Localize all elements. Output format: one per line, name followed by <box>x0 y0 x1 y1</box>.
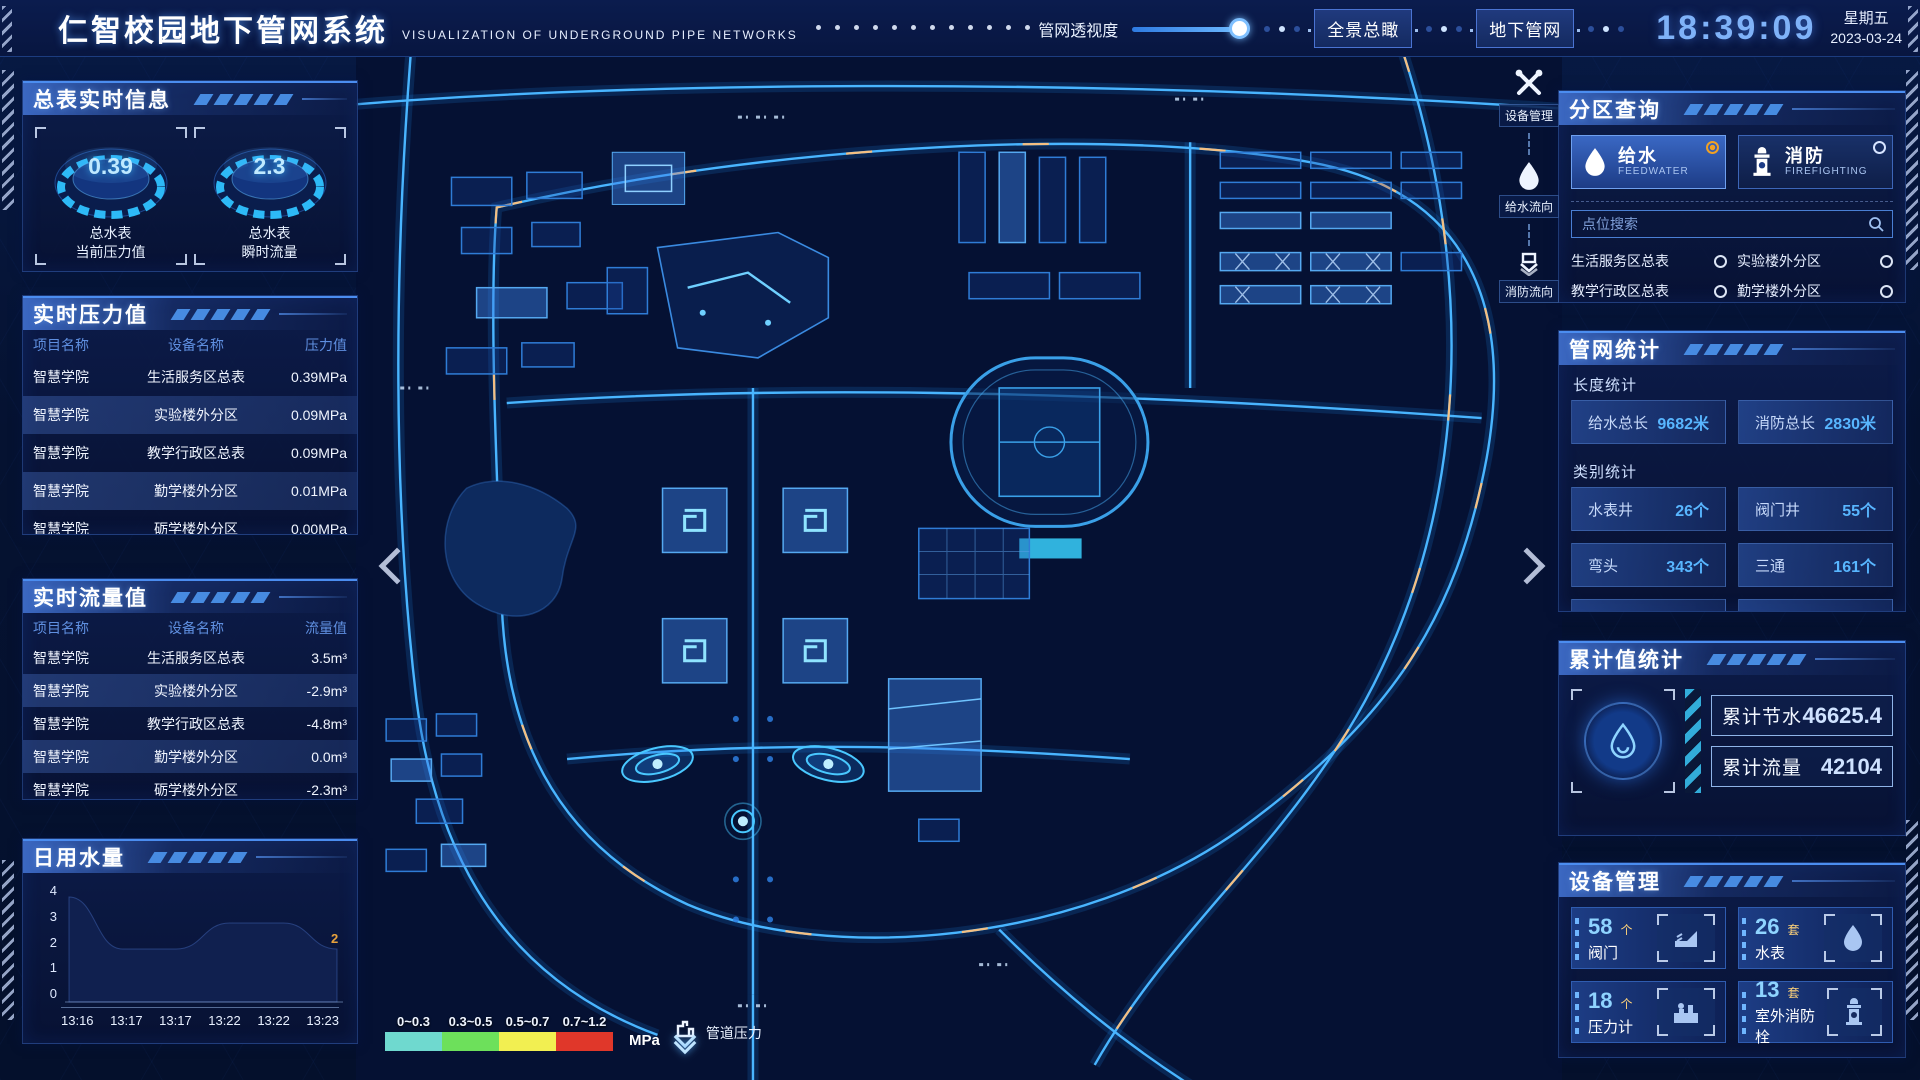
table-row[interactable]: 智慧学院砺学楼外分区-2.3m³ <box>23 773 357 800</box>
radio-icon[interactable] <box>1880 285 1893 298</box>
legend-unit: MPa <box>629 1032 660 1049</box>
pipe-pressure-icon[interactable] <box>674 1019 696 1051</box>
point-item[interactable]: 生活服务区总表 <box>1571 246 1727 276</box>
point-list: 生活服务区总表 实验楼外分区 教学行政区总表 勤学楼外分区 砺学楼外分区 宿舍区… <box>1559 238 1905 303</box>
search-icon[interactable] <box>1868 216 1884 232</box>
device-card-hydrant[interactable]: 13套 室外消防栓 <box>1738 981 1893 1043</box>
tool-fire-flow[interactable]: 消防流向 <box>1499 252 1559 303</box>
weekday: 星期五 <box>1844 9 1889 29</box>
point-item[interactable]: 实验楼外分区 <box>1737 246 1893 276</box>
panel-title: 日用水量 <box>33 842 125 872</box>
stat-chip: 水表井26个 <box>1571 487 1726 531</box>
stat-chip: 三通161个 <box>1738 543 1893 587</box>
device-card-water-meter[interactable]: 26套 水表 <box>1738 907 1893 969</box>
clock: 18:39:09 <box>1656 9 1816 48</box>
panel-title: 设备管理 <box>1569 866 1661 896</box>
table-row[interactable]: 智慧学院砺学楼外分区0.00MPa <box>23 510 357 535</box>
flow-table: 智慧学院生活服务区总表3.5m³ 智慧学院实验楼外分区-2.9m³ 智慧学院教学… <box>23 641 357 800</box>
hazard-stripe <box>1685 689 1701 793</box>
header-bar: 仁智校园地下管网系统 VISUALIZATION OF UNDERGROUND … <box>0 0 1920 57</box>
panel-title: 实时压力值 <box>33 299 148 329</box>
panel-title: 实时流量值 <box>33 582 148 612</box>
panel-title: 累计值统计 <box>1569 644 1684 674</box>
search-input[interactable] <box>1580 215 1868 233</box>
table-row[interactable]: 智慧学院实验楼外分区0.09MPa <box>23 396 357 434</box>
table-row[interactable]: 智慧学院教学行政区总表-4.8m³ <box>23 707 357 740</box>
water-drop-icon <box>1582 147 1608 177</box>
panel-cumulative: 累计值统计 累计节水46625.4 累计流量42104 <box>1558 640 1906 836</box>
tool-feedwater-flow[interactable]: 给水流向 <box>1499 161 1559 218</box>
point-item[interactable]: 教学行政区总表 <box>1571 276 1727 303</box>
water-saving-icon <box>1571 689 1675 793</box>
radio-icon <box>1873 141 1886 154</box>
table-row[interactable]: 智慧学院生活服务区总表0.39MPa <box>23 358 357 396</box>
panel-device-mgmt: 设备管理 58个 阀门 26套 水表 18个 压力计 <box>1558 862 1906 1058</box>
toggle-feedwater[interactable]: 给水FEEDWATER <box>1571 135 1726 189</box>
valve-icon <box>1671 925 1701 951</box>
panel-zone-query: 分区查询 给水FEEDWATER 消防FIREFIGHTING <box>1558 90 1906 303</box>
underground-button[interactable]: 地下管网 <box>1476 9 1574 48</box>
date: 2023-03-24 <box>1830 29 1902 48</box>
stat-chip-clipped <box>1571 599 1726 612</box>
stat-chip: 消防总长2830米 <box>1738 400 1893 444</box>
table-row[interactable]: 智慧学院勤学楼外分区0.0m³ <box>23 740 357 773</box>
app-subtitle: VISUALIZATION OF UNDERGROUND PIPE NETWOR… <box>402 28 798 42</box>
stat-chip: 阀门井55个 <box>1738 487 1893 531</box>
legend-caption: 管道压力 <box>706 1023 762 1043</box>
table-row[interactable]: 智慧学院实验楼外分区-2.9m³ <box>23 674 357 707</box>
cumulative-row: 累计流量42104 <box>1711 746 1893 787</box>
category-stats-label: 类别统计 <box>1559 452 1905 487</box>
hydrant-icon <box>1842 998 1866 1026</box>
pressure-legend: 0~0.3 0.3~0.5 0.5~0.7 0.7~1.2 MPa 管道压力 <box>385 1014 762 1051</box>
panel-title: 总表实时信息 <box>33 84 171 114</box>
toggle-firefighting[interactable]: 消防FIREFIGHTING <box>1738 135 1893 189</box>
table-row[interactable]: 智慧学院勤学楼外分区0.01MPa <box>23 472 357 510</box>
gauge-pressure: 0.39 总水表当前压力值 <box>35 127 187 265</box>
hazard-stripe <box>2 860 14 1020</box>
daily-usage-chart: 43210 2 13:1613:1713:1713:2213:2213:23 <box>31 883 349 1033</box>
gauge-value: 2.3 <box>194 153 346 180</box>
water-drop-icon <box>1516 161 1542 191</box>
flow-direction-icon <box>1514 252 1544 276</box>
panel-pressure: 实时压力值 项目名称设备名称压力值 智慧学院生活服务区总表0.39MPa 智慧学… <box>22 295 358 535</box>
legend-swatch <box>499 1032 556 1051</box>
radio-selected-icon <box>1706 141 1719 154</box>
length-stats-label: 长度统计 <box>1559 365 1905 400</box>
slider-thumb[interactable] <box>1229 18 1250 39</box>
table-row[interactable]: 智慧学院教学行政区总表0.09MPa <box>23 434 357 472</box>
transparency-slider[interactable] <box>1132 20 1250 38</box>
transparency-label: 管网透视度 <box>1038 17 1118 41</box>
pressure-gauge-icon <box>1671 999 1701 1025</box>
table-row[interactable]: 智慧学院生活服务区总表3.5m³ <box>23 641 357 674</box>
chart-end-label: 2 <box>331 931 338 946</box>
radio-icon[interactable] <box>1714 255 1727 268</box>
hazard-stripe <box>1906 820 1918 1020</box>
legend-swatch <box>442 1032 499 1051</box>
stat-chip-clipped <box>1738 599 1893 612</box>
gauge-flow: 2.3 总水表瞬时流量 <box>194 127 346 265</box>
water-drop-icon <box>1841 924 1865 952</box>
hazard-stripe <box>1908 6 1918 52</box>
panel-title: 分区查询 <box>1569 94 1661 124</box>
legend-swatch <box>556 1032 613 1051</box>
stat-chip: 弯头343个 <box>1571 543 1726 587</box>
legend-swatch <box>385 1032 442 1051</box>
panel-meter-info: 总表实时信息 0.39 总水表当前压力值 <box>22 80 358 272</box>
cumulative-row: 累计节水46625.4 <box>1711 695 1893 736</box>
map-prev-arrow[interactable] <box>378 545 408 597</box>
radio-icon[interactable] <box>1880 255 1893 268</box>
tool-device-mgmt[interactable]: 设备管理 <box>1499 66 1559 127</box>
device-card-pressure-gauge[interactable]: 18个 压力计 <box>1571 981 1726 1043</box>
hazard-stripe <box>1906 70 1918 270</box>
pressure-table: 智慧学院生活服务区总表0.39MPa 智慧学院实验楼外分区0.09MPa 智慧学… <box>23 358 357 535</box>
panel-flow: 实时流量值 项目名称设备名称流量值 智慧学院生活服务区总表3.5m³ 智慧学院实… <box>22 578 358 800</box>
overview-button[interactable]: 全景总瞰 <box>1314 9 1412 48</box>
point-search[interactable] <box>1571 210 1893 238</box>
panel-network-stats: 管网统计 长度统计 给水总长9682米 消防总长2830米 类别统计 水表井26… <box>1558 330 1906 612</box>
gauge-value: 0.39 <box>35 153 187 180</box>
hazard-stripe <box>2 70 14 210</box>
header-dots <box>816 25 1030 30</box>
device-card-valve[interactable]: 58个 阀门 <box>1571 907 1726 969</box>
hazard-stripe <box>2 6 12 52</box>
panel-daily-usage: 日用水量 43210 2 13:1613:1713:1713:2213:2213… <box>22 838 358 1044</box>
panel-title: 管网统计 <box>1569 334 1661 364</box>
tools-icon <box>1512 66 1546 100</box>
stat-chip: 给水总长9682米 <box>1571 400 1726 444</box>
dashboard: .rg{stroke:rgba(30,150,255,.16);stroke-w… <box>0 0 1920 1080</box>
app-title: 仁智校园地下管网系统 <box>58 6 388 50</box>
campus-map[interactable]: .rg{stroke:rgba(30,150,255,.16);stroke-w… <box>356 57 1562 1080</box>
water-drop-icon <box>1608 723 1638 759</box>
radio-icon[interactable] <box>1714 285 1727 298</box>
hydrant-icon <box>1749 147 1775 177</box>
point-item[interactable]: 勤学楼外分区 <box>1737 276 1893 303</box>
map-next-arrow[interactable] <box>1516 545 1546 597</box>
